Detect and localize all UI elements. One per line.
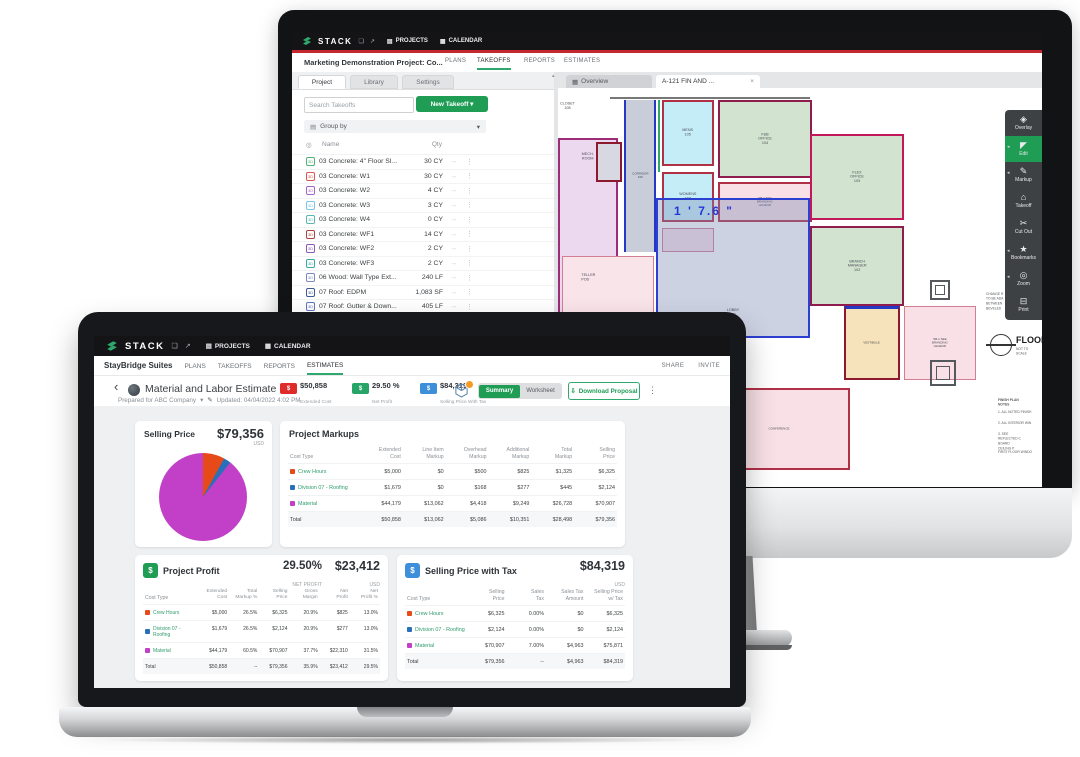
go-to-plan-icon[interactable]: → bbox=[450, 231, 457, 238]
total-label: Total bbox=[405, 653, 467, 669]
stack-logo-icon bbox=[302, 36, 312, 46]
selling-price-value: $79,356 bbox=[217, 427, 264, 440]
toolbar-item-icon: ✎ bbox=[1020, 167, 1028, 176]
header-menu-icon[interactable]: ⋮ bbox=[648, 385, 657, 396]
row-menu-icon[interactable]: ⋮ bbox=[466, 303, 473, 311]
takeoff-row[interactable]: 3D 03 Concrete: W2 4 CY → ⋮ bbox=[292, 183, 554, 198]
takeoff-qty: 2 CY bbox=[407, 260, 443, 267]
card-title: Project Profit bbox=[163, 566, 220, 576]
nav-projects[interactable]: ▤ PROJECTS bbox=[206, 342, 250, 350]
estimate-body: Selling Price $79,356 USD Project Markup… bbox=[94, 406, 730, 688]
column-header: Cost Type bbox=[405, 594, 467, 606]
nav-calendar[interactable]: ▦ CALENDAR bbox=[265, 342, 311, 350]
grid-icon: ▦ bbox=[572, 78, 578, 86]
stat-label: Net Profit bbox=[372, 400, 392, 405]
column-header: Selling Price bbox=[467, 587, 507, 605]
cell: 0.00% bbox=[507, 605, 547, 621]
cell: $277 bbox=[320, 620, 350, 642]
takeoff-row[interactable]: 3D 07 Roof: EDPM 1,083 SF → ⋮ bbox=[292, 285, 554, 300]
total-label: Total bbox=[288, 511, 360, 527]
toolbar-item-icon: ◎ bbox=[1020, 271, 1028, 280]
takeoff-qty: 2 CY bbox=[407, 245, 443, 252]
invite-button[interactable]: INVITE bbox=[698, 363, 720, 369]
total-cell: -- bbox=[229, 658, 259, 674]
laptop-hinge-notch bbox=[357, 707, 453, 717]
download-icon: ⇩ bbox=[570, 388, 575, 395]
search-input[interactable]: Search Takeoffs bbox=[304, 97, 414, 113]
total-cell: 29.5% bbox=[350, 658, 380, 674]
list-header: ◎ Name Qty bbox=[304, 141, 490, 152]
cost-type-color-dot bbox=[290, 501, 295, 506]
plan-note: 1. ALL NOTED FINISH bbox=[998, 410, 1031, 415]
toolbar-item-label: Zoom bbox=[1017, 281, 1030, 287]
cell: $22,310 bbox=[320, 642, 350, 658]
tax-total-value: $84,319 bbox=[580, 560, 625, 573]
cell: 20.9% bbox=[289, 604, 319, 620]
estimate-stat: $ 29.50 % Net Profit bbox=[352, 382, 400, 408]
estimate-header: ‹ Material and Labor Estimate Prepared f… bbox=[94, 376, 730, 407]
go-to-plan-icon[interactable]: → bbox=[450, 303, 457, 310]
room-corridor: CORRIDOR 106 bbox=[624, 100, 656, 252]
total-cell: 35.9% bbox=[289, 658, 319, 674]
cost-type-color-dot bbox=[145, 648, 150, 653]
cost-type-color-dot bbox=[407, 611, 412, 616]
total-cell: $79,356 bbox=[574, 511, 617, 527]
selling-price-tax-card: $ Selling Price with Tax $84,319 USD Cos… bbox=[397, 555, 633, 681]
share-button[interactable]: SHARE bbox=[662, 363, 685, 369]
summary-toggle-button[interactable]: Summary bbox=[479, 385, 520, 398]
popout-icon[interactable]: ↗ bbox=[185, 342, 191, 350]
plan-note: 3. SEE REFLECTED C BOARD CEILING P bbox=[998, 432, 1022, 452]
selling-price-tax-table: Cost Type Selling PriceSales TaxSales Ta… bbox=[405, 587, 625, 669]
toolbar-item-label: Edit bbox=[1019, 151, 1028, 157]
cell: $5,000 bbox=[360, 463, 403, 479]
cost-type-cell[interactable]: Crew Hours bbox=[405, 605, 467, 621]
go-to-plan-icon[interactable]: → bbox=[450, 202, 457, 209]
cell: $445 bbox=[531, 479, 574, 495]
takeoff-list: 3D 03 Concrete: 4" Floor Sl... 30 CY → ⋮… bbox=[292, 154, 554, 328]
toolbar-item-icon: ◤ bbox=[1020, 141, 1027, 150]
takeoff-row[interactable]: 3D 03 Concrete: W1 30 CY → ⋮ bbox=[292, 169, 554, 184]
cell: 60.5% bbox=[229, 642, 259, 658]
takeoff-qty: 405 LF bbox=[407, 303, 443, 310]
row-menu-icon[interactable]: ⋮ bbox=[466, 288, 473, 296]
takeoff-row[interactable]: 3D 03 Concrete: 4" Floor Sl... 30 CY → ⋮ bbox=[292, 154, 554, 169]
toolbar-item[interactable]: ◤ Edit bbox=[1005, 136, 1042, 162]
takeoff-name: 06 Wood: Wall Type Ext... bbox=[319, 274, 407, 281]
cost-type-cell[interactable]: Material bbox=[143, 642, 199, 658]
fullscreen-icon[interactable]: ❏ bbox=[358, 38, 363, 45]
column-header: Cost Type bbox=[143, 593, 199, 605]
cost-type-cell[interactable]: Division 07 - Roofing bbox=[288, 479, 360, 495]
toolbar-item-icon: ⊟ bbox=[1020, 297, 1028, 306]
takeoff-qty: 3 CY bbox=[407, 202, 443, 209]
chevron-down-icon: ▾ bbox=[477, 123, 480, 131]
calendar-icon: ▦ bbox=[265, 342, 271, 350]
net-profit-value: $23,412 bbox=[335, 560, 380, 573]
folder-icon: ▤ bbox=[310, 123, 316, 131]
takeoff-name: 03 Concrete: W2 bbox=[319, 187, 407, 194]
room-flex-office: FLEX OFFICE 103 bbox=[810, 134, 904, 220]
wall-line-green bbox=[658, 100, 660, 172]
takeoff-name: 03 Concrete: W1 bbox=[319, 173, 407, 180]
tab-project[interactable]: Project bbox=[298, 75, 346, 89]
room-closet bbox=[596, 142, 622, 182]
tab-overview[interactable]: ▦ Overview bbox=[566, 75, 652, 88]
cell: $1,679 bbox=[199, 620, 229, 642]
stat-label: Selling Price With Tax bbox=[440, 400, 486, 405]
cell: $44,179 bbox=[199, 642, 229, 658]
estimate-title: Material and Labor Estimate bbox=[145, 383, 276, 395]
column-header: Additional Markup bbox=[488, 445, 531, 463]
cell: 26.5% bbox=[229, 604, 259, 620]
room-branch-manager: BRANCH MANAGER 102 bbox=[810, 226, 904, 306]
column-header: Gross Margin bbox=[289, 587, 319, 604]
cell: $70,907 bbox=[467, 637, 507, 653]
row-menu-icon[interactable]: ⋮ bbox=[466, 201, 473, 209]
takeoff-qty: 240 LF bbox=[407, 274, 443, 281]
stat-value: $50,858 bbox=[300, 382, 331, 390]
brand-name: STACK bbox=[318, 37, 352, 46]
scroll-up-icon[interactable]: ▴ bbox=[552, 73, 555, 79]
chevron-down-icon[interactable]: ▾ bbox=[200, 397, 203, 404]
nav-projects[interactable]: ▤ PROJECTS bbox=[387, 38, 428, 45]
view-toggle: Summary Worksheet bbox=[478, 383, 562, 399]
cell: $5,000 bbox=[199, 604, 229, 620]
briefcase-icon: ▤ bbox=[206, 342, 212, 350]
close-icon[interactable]: × bbox=[750, 78, 754, 85]
cell: $13,062 bbox=[403, 495, 446, 511]
cost-type-color-dot bbox=[145, 629, 150, 634]
takeoff-row[interactable]: 3D 03 Concrete: W4 0 CY → ⋮ bbox=[292, 212, 554, 227]
column-header: Net Profit bbox=[320, 587, 350, 604]
toolbar-item-icon: ★ bbox=[1019, 245, 1027, 254]
go-to-plan-icon[interactable]: → bbox=[450, 289, 457, 296]
takeoff-row[interactable]: 3D 03 Concrete: WF2 2 CY → ⋮ bbox=[292, 241, 554, 256]
brand-name: STACK bbox=[125, 341, 165, 352]
row-menu-icon[interactable]: ⋮ bbox=[466, 230, 473, 238]
column-header: Selling Price bbox=[259, 587, 289, 604]
go-to-plan-icon[interactable]: → bbox=[450, 216, 457, 223]
currency-label: USD bbox=[253, 441, 264, 447]
takeoff-type-icon: 3D bbox=[306, 186, 315, 195]
stack-logo-icon bbox=[106, 340, 118, 352]
total-cell: $28,498 bbox=[531, 511, 574, 527]
takeoff-name: 07 Roof: EDPM bbox=[319, 289, 407, 296]
cell: $26,728 bbox=[531, 495, 574, 511]
cell: $44,179 bbox=[360, 495, 403, 511]
total-cell: $50,858 bbox=[199, 658, 229, 674]
takeoff-qty: 1,083 SF bbox=[407, 289, 443, 296]
row-menu-icon[interactable]: ⋮ bbox=[466, 245, 473, 253]
toolbar-item[interactable]: ◎ Zoom bbox=[1005, 266, 1042, 292]
wall-line bbox=[610, 97, 810, 99]
nav-calendar[interactable]: ▦ CALENDAR bbox=[440, 38, 482, 45]
takeoff-row[interactable]: 3D 06 Wood: Wall Type Ext... 240 LF → ⋮ bbox=[292, 270, 554, 285]
new-takeoff-button[interactable]: New Takeoff ▾ bbox=[416, 96, 488, 112]
toolbar-item-icon: ◈ bbox=[1020, 115, 1027, 124]
column-header: Selling Price bbox=[574, 445, 617, 463]
column-header: Line Item Markup bbox=[403, 445, 446, 463]
cell: $2,124 bbox=[574, 479, 617, 495]
toolbar-item[interactable]: ⌂ Takeoff bbox=[1005, 188, 1042, 214]
tab-reports[interactable]: REPORTS bbox=[524, 58, 555, 68]
total-cell: $79,356 bbox=[467, 653, 507, 669]
tab-sheet[interactable]: A-121 FIN AND ... × bbox=[656, 75, 760, 88]
card-title: Selling Price bbox=[144, 429, 195, 439]
room-vestibule: VESTIBULE bbox=[844, 306, 900, 380]
cell: $2,124 bbox=[259, 620, 289, 642]
column-header: Total Markup bbox=[531, 445, 574, 463]
project-markups-table: Cost Type Extended CostLine Item MarkupO… bbox=[288, 445, 617, 527]
stat-value: 29.50 % bbox=[372, 382, 400, 390]
money-icon: $ bbox=[420, 383, 437, 394]
cost-type-color-dot bbox=[407, 627, 412, 632]
cell: $9,249 bbox=[488, 495, 531, 511]
laptop-screen: STACK ❏ ↗ ▤ PROJECTS ▦ CALENDAR StayBrid… bbox=[94, 336, 730, 688]
cell: $500 bbox=[446, 463, 489, 479]
not-to-scale-note: NOT TO SCALE bbox=[1016, 347, 1030, 357]
takeoff-type-icon: 3D bbox=[306, 273, 315, 282]
takeoff-row[interactable]: 3D 03 Concrete: W3 3 CY → ⋮ bbox=[292, 198, 554, 213]
cell: $0 bbox=[546, 605, 586, 621]
row-menu-icon[interactable]: ⋮ bbox=[466, 216, 473, 224]
total-cell: $79,356 bbox=[259, 658, 289, 674]
takeoff-name: 07 Roof: Gutter & Down... bbox=[319, 303, 407, 310]
go-to-plan-icon[interactable]: → bbox=[450, 187, 457, 194]
go-to-plan-icon[interactable]: → bbox=[450, 158, 457, 165]
column-qty: Qty bbox=[412, 141, 442, 148]
column-name: Name bbox=[322, 141, 339, 148]
takeoff-qty: 4 CY bbox=[407, 187, 443, 194]
takeoff-qty: 14 CY bbox=[407, 231, 443, 238]
toolbar-item[interactable]: ✂ Cut Out bbox=[1005, 214, 1042, 240]
column-symbol bbox=[930, 280, 950, 300]
cost-type-color-dot bbox=[290, 485, 295, 490]
money-icon: $ bbox=[352, 383, 369, 394]
net-profit-pct: 29.50% bbox=[283, 561, 322, 573]
total-cell: $84,319 bbox=[586, 653, 626, 669]
cell: $168 bbox=[446, 479, 489, 495]
stat-label: Extended Cost bbox=[300, 400, 331, 405]
monitor-project-bar: Marketing Demonstration Project: Co... P… bbox=[292, 53, 1042, 73]
cost-type-cell[interactable]: Crew Hours bbox=[288, 463, 360, 479]
toolbar-item-label: Overlay bbox=[1015, 125, 1032, 131]
cost-type-cell[interactable]: Material bbox=[288, 495, 360, 511]
project-markups-card: Project Markups Cost Type Extended CostL… bbox=[280, 421, 625, 547]
cell: $6,325 bbox=[574, 463, 617, 479]
cell: $6,325 bbox=[259, 604, 289, 620]
briefcase-icon: ▤ bbox=[387, 38, 393, 45]
cost-type-cell[interactable]: Crew Hours bbox=[143, 604, 199, 620]
dimension-annotation: 1 ' 7.6 " bbox=[674, 204, 734, 218]
cell: $6,325 bbox=[586, 605, 626, 621]
column-header: Sales Tax bbox=[507, 587, 547, 605]
takeoff-name: 03 Concrete: WF3 bbox=[319, 260, 407, 267]
go-to-plan-icon[interactable]: → bbox=[450, 245, 457, 252]
eye-icon[interactable]: ◎ bbox=[306, 141, 312, 149]
edit-icon[interactable]: ✎ bbox=[207, 397, 212, 404]
row-menu-icon[interactable]: ⋮ bbox=[466, 259, 473, 267]
cell: 26.5% bbox=[229, 620, 259, 642]
tab-takeoffs[interactable]: TAKEOFFS bbox=[218, 358, 252, 374]
plan-notes-footer: FIRST FLOOR WINDO bbox=[998, 450, 1032, 455]
plan-toolbar: ◈ Overlay ◤ Edit ✎ Markup ⌂ Takeoff ✂ Cu… bbox=[1005, 110, 1042, 320]
cell: 37.7% bbox=[289, 642, 319, 658]
group-by-dropdown[interactable]: ▤ Group by ▾ bbox=[304, 120, 486, 133]
cell: 0.00% bbox=[507, 621, 547, 637]
column-header: Net Profit % bbox=[350, 587, 380, 604]
plan-notes-title: FINISH PLAN NOTES bbox=[998, 398, 1022, 408]
selling-price-card: Selling Price $79,356 USD bbox=[135, 421, 272, 547]
tab-plans[interactable]: PLANS bbox=[445, 58, 466, 68]
estimate-stat: $ $50,858 Extended Cost bbox=[280, 382, 331, 408]
toolbar-item-label: Cut Out bbox=[1015, 229, 1032, 235]
column-header: Cost Type bbox=[288, 452, 360, 464]
column-header: Extended Cost bbox=[360, 445, 403, 463]
cell: $277 bbox=[488, 479, 531, 495]
cell: 13.0% bbox=[350, 620, 380, 642]
floor-symbol-line bbox=[986, 344, 1016, 346]
project-title[interactable]: Marketing Demonstration Project: Co... bbox=[304, 58, 443, 67]
cell: 31.5% bbox=[350, 642, 380, 658]
notification-badge bbox=[465, 380, 474, 389]
cost-type-cell[interactable]: Material bbox=[405, 637, 467, 653]
total-cell: $23,412 bbox=[320, 658, 350, 674]
takeoff-type-icon: 3D bbox=[306, 201, 315, 210]
row-menu-icon[interactable]: ⋮ bbox=[466, 187, 473, 195]
calendar-icon: ▦ bbox=[440, 38, 446, 45]
column-header: Extended Cost bbox=[199, 587, 229, 604]
tab-settings[interactable]: Settings bbox=[402, 75, 454, 89]
laptop-shadow bbox=[95, 736, 715, 744]
tab-plans[interactable]: PLANS bbox=[184, 358, 205, 374]
go-to-plan-icon[interactable]: → bbox=[450, 260, 457, 267]
cost-type-color-dot bbox=[145, 610, 150, 615]
laptop-topbar: STACK ❏ ↗ ▤ PROJECTS ▦ CALENDAR bbox=[94, 336, 730, 356]
floor-plan-title: FLOOR bbox=[1016, 335, 1042, 345]
back-icon[interactable]: ‹ bbox=[114, 379, 118, 394]
takeoff-qty: 30 CY bbox=[407, 173, 443, 180]
takeoff-type-icon: 3D bbox=[306, 259, 315, 268]
toolbar-item[interactable]: ★ Bookmarks bbox=[1005, 240, 1042, 266]
plan-note: 2. ALL INTERIOR WIN bbox=[998, 421, 1031, 426]
fullscreen-icon[interactable]: ❏ bbox=[172, 342, 178, 350]
total-cell: $10,351 bbox=[488, 511, 531, 527]
cell: $2,124 bbox=[586, 621, 626, 637]
cell: $70,907 bbox=[259, 642, 289, 658]
tab-library[interactable]: Library bbox=[350, 75, 398, 89]
cell: $1,325 bbox=[531, 463, 574, 479]
toolbar-item-label: Print bbox=[1018, 307, 1028, 313]
row-menu-icon[interactable]: ⋮ bbox=[466, 172, 473, 180]
card-title: Selling Price with Tax bbox=[425, 566, 517, 576]
toolbar-item[interactable]: ✎ Markup bbox=[1005, 162, 1042, 188]
project-profit-card: $ Project Profit 29.50% NET PROFIT $23,4… bbox=[135, 555, 388, 681]
cell: $4,963 bbox=[546, 637, 586, 653]
cell: $70,907 bbox=[574, 495, 617, 511]
cost-type-cell[interactable]: Division 07 - Roofing bbox=[143, 620, 199, 642]
popout-icon[interactable]: ↗ bbox=[370, 38, 375, 45]
cell: $0 bbox=[546, 621, 586, 637]
room-mens: MENS 105 bbox=[662, 100, 714, 166]
takeoff-type-icon: 3D bbox=[306, 230, 315, 239]
cell: $825 bbox=[320, 604, 350, 620]
takeoff-name: 03 Concrete: 4" Floor Sl... bbox=[319, 158, 407, 165]
cell: $2,124 bbox=[467, 621, 507, 637]
cell: $4,418 bbox=[446, 495, 489, 511]
cell: $6,325 bbox=[467, 605, 507, 621]
toolbar-item[interactable]: ⊟ Print bbox=[1005, 292, 1042, 318]
total-cell: -- bbox=[507, 653, 547, 669]
takeoff-row[interactable]: 3D 03 Concrete: WF1 14 CY → ⋮ bbox=[292, 227, 554, 242]
total-cell: $5,086 bbox=[446, 511, 489, 527]
selling-price-pie bbox=[159, 453, 247, 541]
cost-type-cell[interactable]: Division 07 - Roofing bbox=[405, 621, 467, 637]
toolbar-item-icon: ⌂ bbox=[1021, 193, 1026, 202]
stage: STACK ❏ ↗ ▤ PROJECTS ▦ CALENDAR Marketin… bbox=[0, 0, 1080, 757]
total-cell: $13,062 bbox=[403, 511, 446, 527]
cost-type-color-dot bbox=[407, 643, 412, 648]
takeoff-type-icon: 3D bbox=[306, 215, 315, 224]
takeoff-type-icon: 3D bbox=[306, 302, 315, 311]
takeoff-name: 03 Concrete: WF2 bbox=[319, 245, 407, 252]
estimate-globe-icon bbox=[128, 384, 140, 396]
takeoff-type-icon: 3D bbox=[306, 157, 315, 166]
takeoff-row[interactable]: 3D 03 Concrete: WF3 2 CY → ⋮ bbox=[292, 256, 554, 271]
go-to-plan-icon[interactable]: → bbox=[450, 274, 457, 281]
column-header: Overhead Markup bbox=[446, 445, 489, 463]
takeoff-type-icon: 3D bbox=[306, 172, 315, 181]
takeoff-name: 03 Concrete: W3 bbox=[319, 202, 407, 209]
takeoff-type-icon: 3D bbox=[306, 288, 315, 297]
project-profit-table: Cost Type Extended CostTotal Markup %Sel… bbox=[143, 587, 380, 674]
cell: $1,679 bbox=[360, 479, 403, 495]
toolbar-item[interactable]: ◈ Overlay bbox=[1005, 110, 1042, 136]
room-label-closet: CLOSET 108 bbox=[560, 102, 575, 111]
worksheet-toggle-button[interactable]: Worksheet bbox=[520, 385, 561, 398]
column-header: Selling Price w/ Tax bbox=[586, 587, 626, 605]
column-header: Total Markup % bbox=[229, 587, 259, 604]
card-title: Project Markups bbox=[289, 429, 359, 439]
monitor-topbar: STACK ❏ ↗ ▤ PROJECTS ▦ CALENDAR bbox=[292, 32, 1042, 50]
cost-type-color-dot bbox=[290, 469, 295, 474]
row-menu-icon[interactable]: ⋮ bbox=[466, 158, 473, 166]
cell: $0 bbox=[403, 463, 446, 479]
column-symbol bbox=[930, 360, 956, 386]
cell: 20.9% bbox=[289, 620, 319, 642]
project-title[interactable]: StayBridge Suites bbox=[104, 361, 172, 370]
cell: 7.00% bbox=[507, 637, 547, 653]
prepared-for[interactable]: Prepared for ABC Company bbox=[118, 397, 196, 404]
toolbar-item-icon: ✂ bbox=[1020, 219, 1028, 228]
total-cell: $4,963 bbox=[546, 653, 586, 669]
tab-reports[interactable]: REPORTS bbox=[264, 358, 295, 374]
go-to-plan-icon[interactable]: → bbox=[450, 173, 457, 180]
estimate-subtitle: Prepared for ABC Company ▾ ✎ Updated: 04… bbox=[118, 397, 301, 404]
tab-estimates[interactable]: ESTIMATES bbox=[307, 357, 343, 375]
panel-tabs: Project Library Settings bbox=[292, 72, 554, 90]
cell: $0 bbox=[403, 479, 446, 495]
row-menu-icon[interactable]: ⋮ bbox=[466, 274, 473, 282]
download-proposal-button[interactable]: ⇩ Download Proposal bbox=[568, 382, 640, 400]
tab-estimates[interactable]: ESTIMATES bbox=[564, 58, 600, 68]
laptop-project-bar: StayBridge Suites PLANS TAKEOFFS REPORTS… bbox=[94, 356, 730, 376]
tab-takeoffs[interactable]: TAKEOFFS bbox=[477, 58, 511, 70]
toolbar-item-label: Bookmarks bbox=[1011, 255, 1036, 261]
money-icon: $ bbox=[280, 383, 297, 394]
tax-money-icon: $ bbox=[405, 563, 420, 578]
